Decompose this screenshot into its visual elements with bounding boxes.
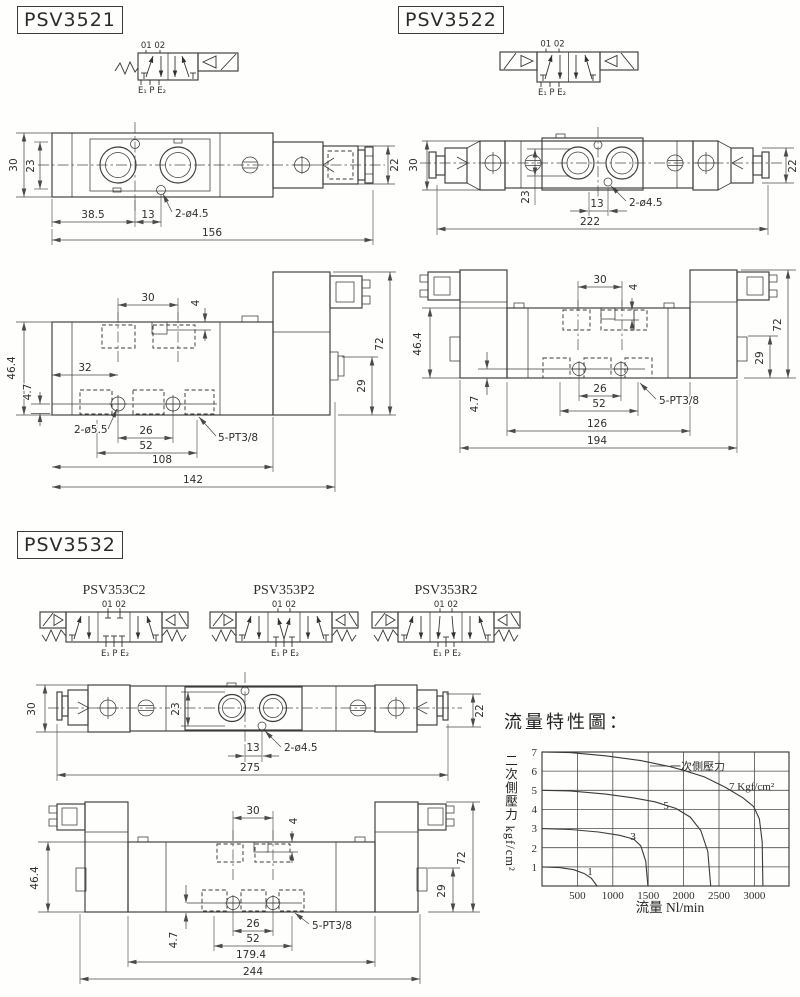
dim-26: 26	[593, 383, 607, 395]
dim-4: 4	[288, 817, 300, 824]
dim-179-4: 179.4	[236, 949, 266, 961]
symbol-bottom-ports: E₁ P E₂	[138, 86, 166, 96]
dim-13: 13	[590, 198, 603, 210]
dim-4: 4	[628, 283, 640, 290]
dim-hole-2xd4-5: 2-ø4.5	[284, 742, 318, 754]
dim-156: 156	[202, 227, 222, 239]
dim-30: 30	[8, 158, 20, 171]
symbol-bottom-ports: E₁ P E₂	[433, 649, 461, 659]
dim-port-5-pt38: 5-PT3/8	[218, 432, 258, 444]
dim-30: 30	[408, 158, 420, 171]
variant-title-c2: PSV353C2	[82, 583, 145, 598]
symbol-bottom-ports: E₁ P E₂	[271, 649, 299, 659]
dim-hole-2xd4-5: 2-ø4.5	[629, 197, 663, 209]
symbol-bottom-ports: E₁ P E₂	[101, 649, 129, 659]
dim-29: 29	[436, 884, 448, 897]
dim-52: 52	[592, 398, 605, 410]
dim-126: 126	[587, 418, 607, 430]
dim-26: 26	[139, 425, 153, 437]
xtick-1500: 1500	[637, 890, 660, 902]
dim-23: 23	[25, 159, 37, 172]
psv353r2-valve-symbol: PSV353R2 01 02 E₁ P E₂	[372, 583, 520, 659]
dim-30: 30	[26, 702, 38, 715]
symbol-top-ports: 01 02	[141, 41, 165, 51]
dim-4-7: 4.7	[168, 932, 180, 949]
variant-title-p2: PSV353P2	[253, 583, 314, 598]
solenoid-body	[375, 802, 418, 912]
plot-border	[542, 752, 789, 886]
solenoid-body	[85, 802, 128, 912]
dim-13: 13	[246, 742, 259, 754]
ytick-2: 2	[532, 843, 538, 855]
symbol-top-ports: 01 02	[434, 600, 458, 610]
dim-72: 72	[374, 337, 386, 350]
dim-hole-2xd4-5: 2-ø4.5	[175, 208, 209, 220]
dim-30: 30	[593, 274, 606, 286]
ytick-7: 7	[532, 747, 538, 759]
curve-label-1: 1	[587, 866, 593, 878]
xtick-2000: 2000	[673, 890, 696, 902]
spring-icon	[374, 630, 398, 641]
psv353p2-valve-symbol: PSV353P2 01 02 E₁ P E₂	[210, 583, 358, 659]
solenoid-icon	[210, 612, 236, 628]
xtick-3000: 3000	[743, 890, 766, 902]
dim-46-4: 46.4	[412, 332, 424, 356]
psv3522-top-view: 30 23 13 2-ø4.5 222 22	[408, 134, 799, 228]
spring-icon	[212, 630, 236, 641]
dim-port-5-pt38: 5-PT3/8	[659, 395, 699, 407]
dim-108: 108	[152, 454, 172, 466]
ytick-3: 3	[532, 823, 538, 835]
solenoid-body	[460, 270, 507, 378]
flow-characteristic-chart: 7 6 5 4 3 2 1 500 1000 1500 2000 2500 30…	[532, 747, 790, 902]
annotation-primary-pressure: 一次側壓力	[670, 759, 725, 773]
catalog-page: PSV3521 PSV3522 PSV3532 流量特性圖： 二次側壓力 kgf…	[0, 0, 800, 997]
spring-icon	[332, 630, 356, 641]
dim-26: 26	[246, 918, 260, 930]
psv3521-top-view: 30 23 22 38.5 13 2-ø4.5 156	[8, 133, 401, 239]
dim-244: 244	[243, 966, 263, 978]
dim-22: 22	[787, 159, 799, 172]
dim-4-7: 4.7	[22, 384, 34, 401]
spring-icon	[162, 630, 186, 641]
ytick-6: 6	[532, 766, 538, 778]
connector	[737, 272, 769, 300]
dim-22: 22	[474, 704, 486, 717]
dim-72: 72	[772, 318, 784, 331]
dim-46-4: 46.4	[29, 866, 41, 890]
variant-title-r2: PSV353R2	[414, 583, 477, 598]
psv353c2-valve-symbol: PSV353C2 01 02 E₁ P E₂	[40, 583, 188, 659]
mounting-hole	[604, 178, 612, 186]
flow-curve-7kgf	[542, 752, 763, 886]
symbol-top-ports: 01 02	[102, 600, 126, 610]
dim-52: 52	[139, 440, 152, 452]
xtick-2500: 2500	[708, 890, 731, 902]
psv3532-front-view: 30 4 46.4 4.7 26 52 179.4 244 5-PT3/8 29…	[29, 802, 468, 978]
dim-222: 222	[580, 216, 600, 228]
spring-icon	[42, 630, 66, 641]
solenoid-body	[273, 272, 330, 415]
symbol-top-ports: 01 02	[540, 40, 564, 50]
dim-142: 142	[183, 474, 203, 486]
dim-275: 275	[240, 762, 260, 774]
dimension-lines	[16, 122, 796, 984]
ytick-1: 1	[532, 862, 538, 874]
solenoid-icon	[372, 612, 398, 628]
flow-curve-5kgf	[542, 790, 711, 886]
psv3532-top-view: 30 23 22 13 2-ø4.5 275	[26, 683, 486, 774]
dim-30: 30	[246, 805, 259, 817]
psv3521-front-view: 30 4 46.4 32 4.7 2-ø5.5 26 52 5-PT3/8 10…	[6, 272, 386, 486]
symbol-top-ports: 01 02	[272, 600, 296, 610]
dim-port-5-pt38: 5-PT3/8	[312, 920, 352, 932]
psv3522-front-view: 30 4 46.4 4.7 26 52 5-PT3/8 126 194 29 7…	[412, 270, 784, 447]
ytick-5: 5	[532, 785, 538, 797]
dim-4-7: 4.7	[469, 396, 481, 413]
connector	[428, 272, 460, 300]
mounting-hole	[258, 722, 266, 730]
solenoid-body	[690, 270, 737, 378]
technical-drawing-canvas: 01 02 E₁ P E₂ 01 02 E₁ P E₂	[0, 0, 800, 997]
curve-label-5: 5	[663, 800, 669, 812]
dim-13: 13	[141, 209, 154, 221]
dim-22: 22	[389, 158, 401, 171]
connector	[330, 276, 362, 308]
dim-52: 52	[246, 933, 259, 945]
spring-icon	[494, 630, 518, 641]
psv3521-valve-symbol: 01 02 E₁ P E₂	[115, 41, 238, 96]
curve-label-3: 3	[630, 831, 636, 843]
mounting-hole	[157, 186, 166, 195]
dim-72: 72	[456, 851, 468, 864]
dim-23: 23	[170, 702, 182, 715]
dim-32: 32	[78, 362, 91, 374]
psv3522-valve-symbol: 01 02 E₁ P E₂	[500, 40, 638, 99]
dim-46-4: 46.4	[6, 356, 18, 380]
solenoid-icon	[40, 612, 66, 628]
curve-label-7kgf: 7 Kgf/cm²	[729, 781, 775, 793]
dim-29: 29	[356, 379, 368, 392]
dim-38-5: 38.5	[81, 209, 104, 221]
dim-hole-2xd5-5: 2-ø5.5	[74, 424, 108, 436]
symbol-bottom-ports: E₁ P E₂	[538, 88, 566, 98]
dim-194: 194	[587, 435, 607, 447]
ytick-4: 4	[532, 804, 538, 816]
xtick-500: 500	[569, 890, 586, 902]
xtick-1000: 1000	[602, 890, 625, 902]
dim-4: 4	[190, 299, 202, 306]
dim-23: 23	[520, 190, 532, 203]
dim-30: 30	[141, 292, 154, 304]
dim-29: 29	[754, 351, 766, 364]
spring-icon	[115, 62, 138, 74]
